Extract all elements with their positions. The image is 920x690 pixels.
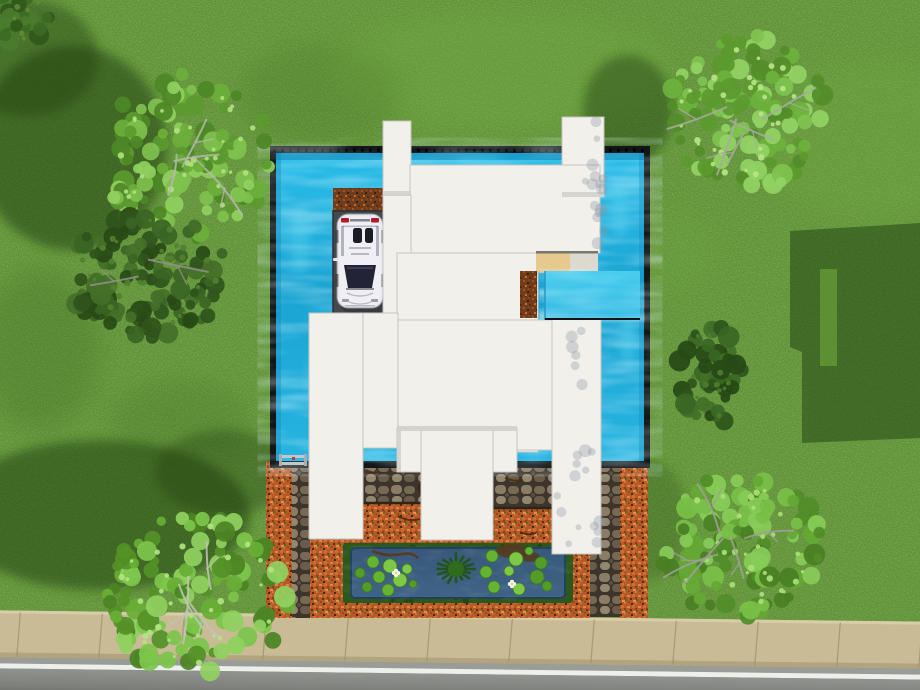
side-mirror (333, 258, 338, 261)
aerial-view-canvas (0, 0, 920, 690)
stone-path (490, 467, 554, 509)
dirt-strip (520, 271, 537, 318)
lily-pad (480, 566, 492, 578)
lily-pad (530, 570, 544, 584)
lily-pad (362, 582, 372, 592)
lily-pad (373, 571, 385, 583)
tower-left (383, 121, 411, 196)
game-viewport (0, 0, 920, 690)
roof-top-slab (410, 165, 600, 253)
house-cast-shadow (790, 223, 920, 443)
car-seat (353, 228, 362, 243)
lily-pad (409, 580, 417, 588)
lily-pad (367, 556, 379, 568)
roof-center-lower (421, 428, 493, 540)
taillight-right (371, 218, 379, 223)
mulch-bed (620, 468, 648, 618)
pool-inlet (545, 271, 640, 320)
lily-pad (402, 564, 412, 574)
lily-pad (504, 566, 514, 576)
taillight-left (341, 218, 349, 223)
lily-pad (542, 581, 552, 591)
lily-pad (486, 550, 498, 562)
lily-pad (488, 581, 500, 593)
lily-pad (509, 552, 523, 566)
lily-pad (535, 557, 547, 569)
lily-pad (355, 568, 365, 578)
roof-left-mid (363, 313, 398, 448)
dirt-patch (333, 188, 386, 212)
lily-pad (525, 547, 533, 555)
shadow-light-slot (820, 269, 837, 366)
wing-left (309, 313, 363, 539)
lily-pad (382, 584, 394, 596)
garden-pond[interactable] (343, 543, 573, 604)
car-seat (365, 228, 373, 243)
sports-car[interactable] (333, 214, 389, 313)
